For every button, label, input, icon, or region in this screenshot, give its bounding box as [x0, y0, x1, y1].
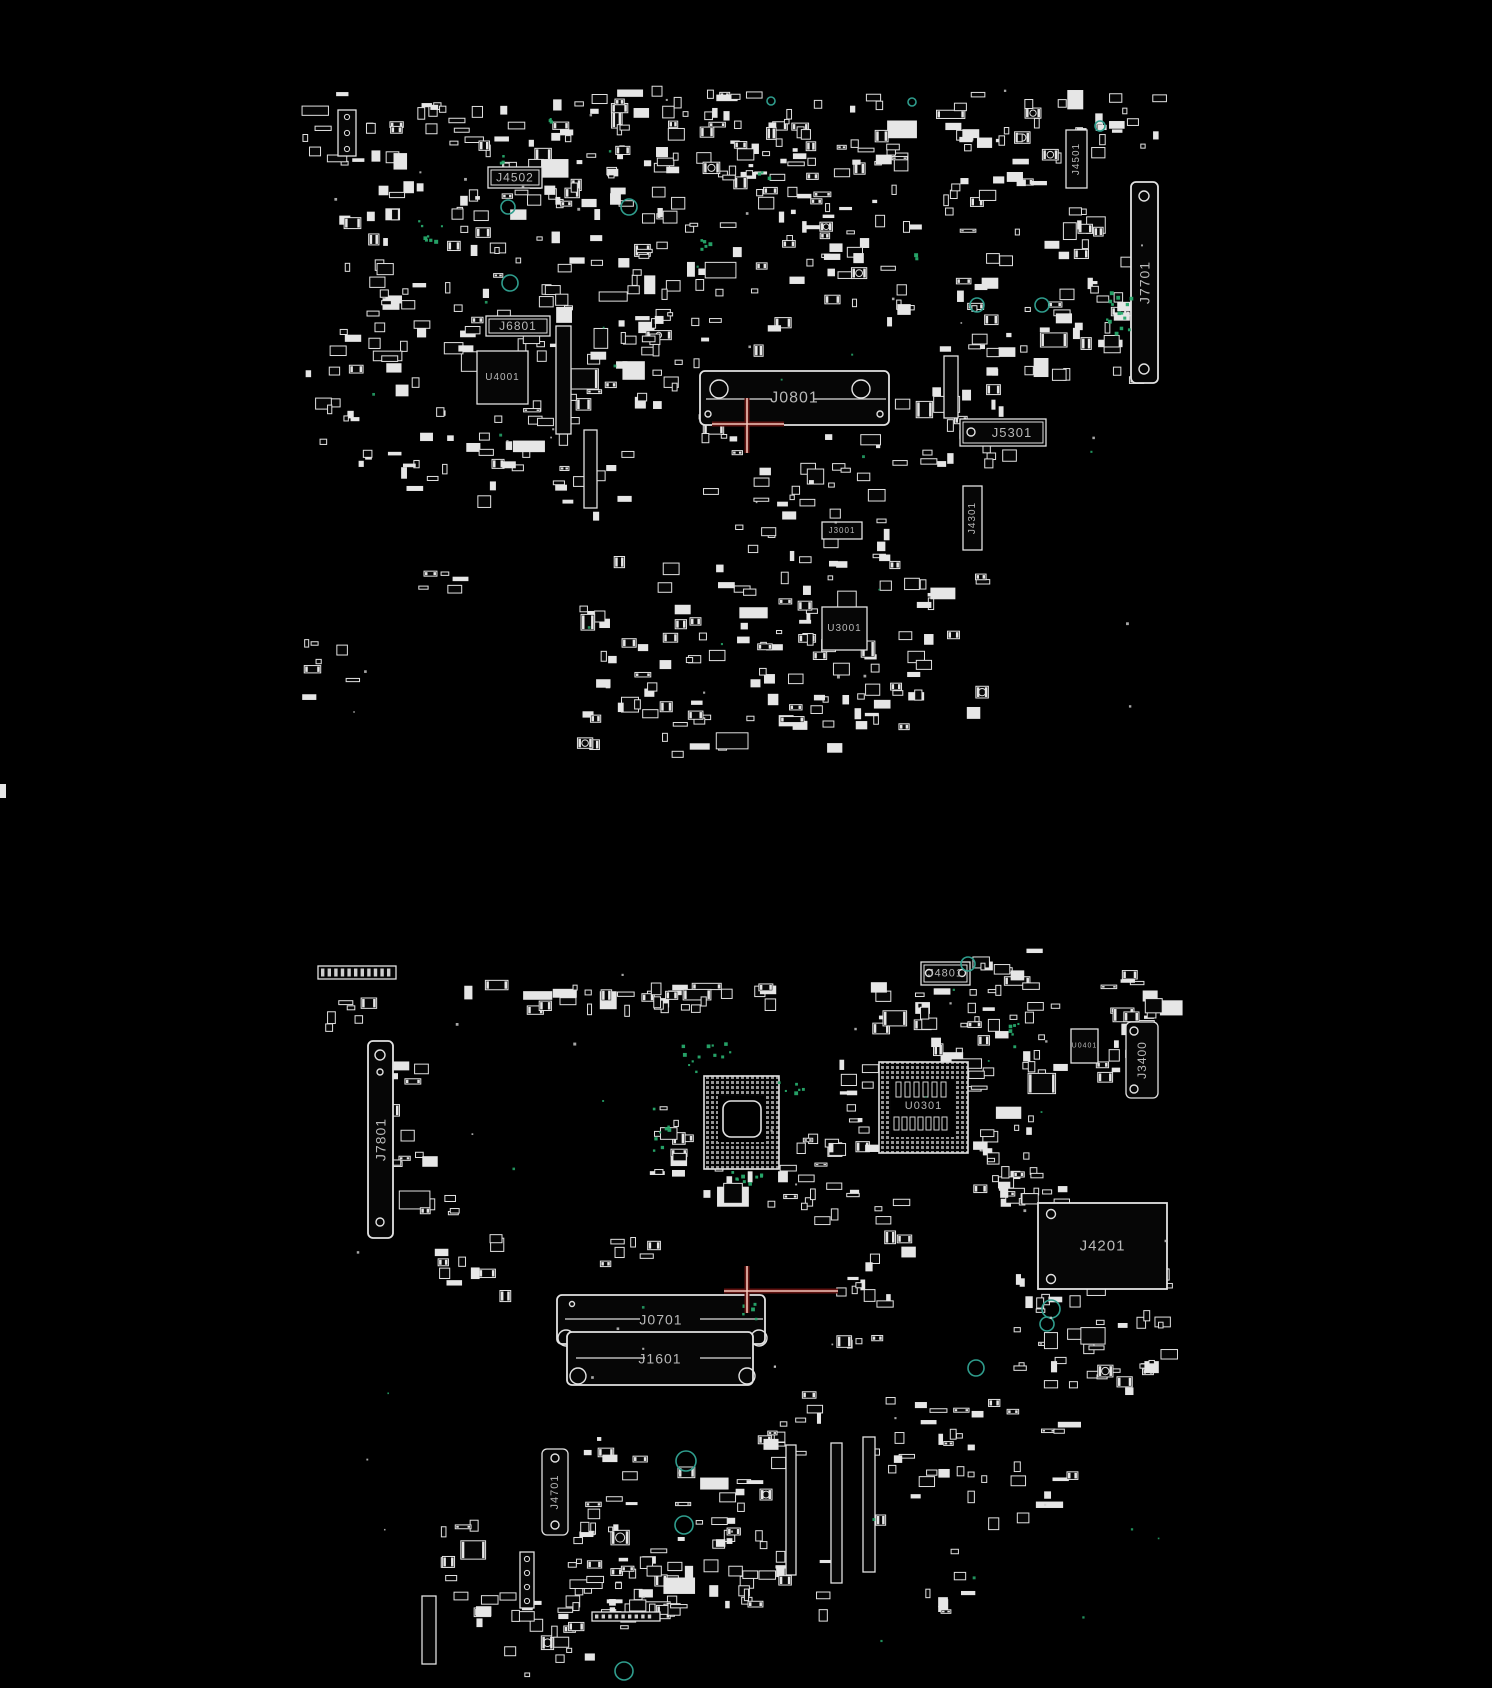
smd-part	[1059, 252, 1069, 259]
smd-part	[954, 1408, 969, 1412]
via-dot-green	[653, 1149, 655, 1151]
smd-part	[626, 1502, 638, 1505]
smd-part	[554, 1637, 569, 1647]
smd-part	[872, 200, 877, 203]
smd-part	[330, 346, 346, 356]
smd-part	[345, 335, 361, 342]
smd-part	[502, 194, 512, 198]
component-J4502[interactable]: J4502	[488, 167, 542, 188]
smd-part	[651, 1549, 667, 1553]
smd-part	[779, 212, 784, 223]
smd-part	[638, 644, 648, 651]
smd-part	[744, 589, 756, 595]
smd-part	[814, 695, 825, 701]
component-U0401[interactable]: U0401	[1071, 1029, 1098, 1063]
via-dot-green	[499, 434, 502, 437]
via-dot	[949, 1002, 951, 1004]
smd-part	[472, 317, 483, 323]
smd-part	[723, 175, 735, 180]
smd-part	[993, 1176, 999, 1182]
smd-part	[780, 159, 786, 164]
smd-part	[793, 153, 806, 159]
smd-part	[1074, 249, 1088, 258]
via-dot	[643, 1596, 645, 1598]
smd-part	[622, 361, 644, 380]
smd-part	[780, 717, 804, 723]
smd-part	[716, 733, 748, 749]
smd-part	[623, 1472, 638, 1480]
smd-part	[663, 106, 674, 118]
smd-part	[476, 1618, 482, 1627]
smd-part	[668, 313, 673, 316]
smd-part	[1026, 1127, 1032, 1135]
smd-part	[653, 370, 661, 375]
smd-part	[973, 1141, 988, 1149]
smd-part	[702, 434, 709, 443]
smd-part	[1041, 1429, 1055, 1432]
smd-part	[461, 1541, 486, 1559]
smd-part	[749, 164, 754, 167]
smd-part	[690, 223, 698, 226]
smd-part	[316, 659, 321, 663]
smd-part	[512, 1610, 520, 1621]
smd-part	[876, 215, 885, 226]
smd-part	[1097, 296, 1109, 302]
via-dot-green	[421, 225, 423, 227]
component-U0301[interactable]: U0301	[879, 1062, 968, 1153]
smd-part	[413, 283, 427, 287]
via-dot	[1141, 244, 1143, 246]
via-dot	[679, 1472, 682, 1475]
smd-part	[1122, 971, 1137, 979]
via-dot	[590, 114, 592, 116]
smd-part	[1000, 1187, 1008, 1198]
smd-part	[704, 1560, 718, 1572]
smd-part	[815, 1163, 827, 1166]
connector-strip[interactable]	[338, 110, 356, 156]
smd-part	[856, 1283, 862, 1288]
component-J4801[interactable]: J4801	[921, 962, 970, 985]
smd-part	[351, 417, 360, 421]
via-dot-green	[434, 240, 438, 244]
smd-part	[1053, 1064, 1068, 1071]
smd-part	[892, 185, 896, 194]
smd-part	[585, 990, 591, 995]
smd-part	[865, 713, 879, 716]
via-dot	[1050, 1317, 1052, 1319]
via-dot-green	[1082, 1616, 1084, 1618]
smd-part	[765, 999, 775, 1011]
smd-part	[311, 642, 318, 645]
smd-part	[483, 289, 489, 298]
smd-part	[712, 1518, 727, 1525]
connector-strip[interactable]	[786, 1445, 796, 1575]
smd-part	[788, 187, 797, 196]
smd-part	[839, 1060, 844, 1070]
smd-part	[1017, 134, 1022, 142]
smd-part	[635, 316, 649, 320]
smd-part	[941, 1610, 951, 1614]
connector-strip[interactable]	[944, 356, 958, 418]
smd-part	[656, 147, 668, 157]
smd-part	[1096, 1320, 1104, 1324]
smd-part	[535, 148, 552, 160]
smd-part	[449, 118, 465, 122]
smd-part	[609, 175, 614, 178]
smd-part	[472, 106, 482, 117]
via-dot-green	[1130, 297, 1134, 301]
smd-part	[516, 258, 521, 263]
via-dot-green	[703, 240, 706, 243]
smd-part	[945, 123, 961, 130]
smd-part	[983, 1068, 994, 1076]
smd-part	[946, 208, 954, 215]
smd-part	[1124, 1012, 1139, 1022]
smd-part	[779, 1576, 792, 1585]
component-J7801[interactable]: J7801	[368, 1041, 393, 1238]
smd-part	[537, 237, 542, 240]
component-bga-large[interactable]	[704, 1076, 779, 1169]
component-J7701[interactable]: J7701	[1131, 182, 1158, 383]
smd-part	[1052, 1477, 1068, 1481]
smd-part	[369, 234, 379, 245]
smd-part	[440, 1268, 450, 1278]
connector-strip[interactable]	[520, 1552, 534, 1608]
smd-part	[960, 178, 968, 184]
smd-part	[989, 1518, 999, 1530]
smd-part	[768, 1431, 777, 1435]
smd-part	[591, 260, 602, 265]
smd-part	[874, 715, 879, 724]
smd-part	[987, 254, 1000, 264]
via-dot-green	[1115, 332, 1119, 336]
via-dot-green	[761, 171, 763, 173]
smd-part	[479, 141, 489, 150]
smd-part	[733, 247, 742, 257]
smd-part	[852, 160, 860, 165]
smd-part	[601, 651, 606, 661]
smd-part	[1040, 327, 1050, 332]
connector-strip[interactable]	[863, 1437, 875, 1572]
smd-part	[1025, 100, 1033, 109]
smd-part	[744, 1589, 748, 1601]
smd-part	[648, 1241, 661, 1249]
via-dot-green	[642, 1306, 645, 1309]
smd-part	[789, 277, 804, 284]
via-dot-green	[880, 1640, 882, 1642]
via-dot-green	[1158, 1538, 1160, 1540]
smd-part	[524, 409, 541, 412]
smd-part	[1007, 172, 1023, 182]
smd-part	[1149, 1360, 1154, 1363]
smd-part	[1114, 1040, 1119, 1048]
smd-part	[876, 1515, 886, 1525]
smd-part	[907, 672, 920, 677]
smd-part	[829, 243, 842, 252]
smd-part	[617, 992, 634, 996]
smd-part	[1075, 323, 1083, 330]
smd-part	[337, 645, 348, 655]
smd-part	[569, 1622, 584, 1630]
smd-part	[621, 332, 625, 343]
via-dot-green	[418, 220, 420, 222]
smd-part	[396, 385, 409, 397]
via-dot	[357, 1251, 359, 1253]
via-dot	[617, 1327, 620, 1330]
smd-part	[860, 238, 869, 248]
smd-part	[1118, 1323, 1128, 1328]
smd-part	[424, 571, 437, 576]
smd-part	[732, 451, 742, 455]
smd-part	[1023, 983, 1040, 989]
smd-part	[619, 1558, 628, 1562]
connector-strip[interactable]	[831, 1443, 842, 1583]
smd-part	[430, 1199, 435, 1210]
smd-part	[1160, 1000, 1183, 1015]
smd-part	[1082, 240, 1088, 249]
smd-part	[588, 1509, 600, 1519]
via-dot-green	[721, 643, 723, 645]
smd-part	[915, 993, 924, 997]
via-dot	[731, 1530, 733, 1532]
smd-part	[1051, 1361, 1057, 1372]
smd-part	[344, 416, 348, 421]
smd-part	[692, 318, 699, 325]
connector-strip[interactable]	[318, 966, 396, 979]
component-label: U0401	[1072, 1043, 1098, 1050]
via-dot-green	[688, 1064, 690, 1066]
smd-part	[614, 556, 624, 567]
smd-part	[653, 401, 662, 409]
smd-part	[642, 214, 654, 223]
component-J3400[interactable]: J3400	[1126, 1022, 1158, 1098]
smd-part	[506, 441, 512, 450]
smd-part	[736, 525, 743, 529]
connector-strip[interactable]	[556, 326, 571, 434]
smd-part	[448, 585, 462, 593]
via-dot-green	[743, 1180, 746, 1183]
component-J6801[interactable]: J6801	[486, 316, 550, 336]
smd-part	[1039, 1035, 1045, 1040]
component-label: J7801	[373, 1118, 389, 1161]
component-J3001[interactable]: J3001	[822, 522, 862, 539]
smd-part	[778, 1171, 788, 1182]
via-dot	[748, 346, 751, 349]
smd-part	[720, 1493, 736, 1502]
smd-part	[1058, 100, 1066, 108]
component-J0801[interactable]: J0801	[700, 371, 889, 425]
via-dot	[1004, 90, 1006, 92]
smd-part	[479, 1269, 496, 1277]
via-dot-green	[1111, 303, 1114, 306]
smd-part	[541, 159, 568, 178]
smd-part	[921, 1420, 937, 1424]
smd-part	[957, 291, 964, 302]
smd-part	[683, 112, 688, 117]
via-dot	[854, 1028, 856, 1030]
smd-part	[1067, 1472, 1078, 1480]
smd-part	[905, 578, 920, 589]
smd-part	[960, 229, 976, 232]
smd-part	[419, 586, 428, 589]
smd-part	[1125, 1387, 1133, 1395]
smd-part	[759, 197, 774, 209]
smd-part	[500, 1291, 511, 1302]
smd-part	[611, 1239, 624, 1244]
component-J4501[interactable]: J4501	[1066, 130, 1087, 188]
smd-part	[635, 700, 641, 709]
component-label: J7701	[1137, 261, 1153, 304]
smd-part	[426, 124, 437, 134]
smd-part	[388, 452, 402, 456]
smd-part	[596, 679, 610, 687]
smd-part	[1104, 335, 1119, 346]
smd-part	[976, 580, 990, 584]
via-dot	[795, 1183, 797, 1185]
component-U4001[interactable]: U4001	[477, 351, 528, 404]
via-dot	[419, 171, 421, 173]
smd-part	[797, 194, 811, 199]
smd-part	[639, 1589, 653, 1597]
smd-part	[893, 1199, 909, 1205]
smd-part	[879, 555, 890, 562]
connector-strip[interactable]	[422, 1596, 436, 1664]
smd-part	[783, 241, 796, 248]
smd-part	[875, 1207, 882, 1211]
smd-part	[315, 126, 331, 130]
smd-part	[1081, 338, 1091, 350]
smd-part	[916, 660, 931, 669]
fiducial-ring	[968, 1360, 984, 1376]
via-dot-green	[614, 365, 617, 368]
smd-part	[705, 112, 713, 120]
smd-part	[420, 1208, 430, 1214]
smd-part	[803, 1138, 812, 1142]
smd-part	[435, 1249, 449, 1256]
smd-part	[763, 1439, 778, 1450]
smd-part	[464, 986, 472, 1000]
smd-part	[558, 1608, 573, 1612]
smd-part	[329, 367, 339, 375]
smd-part	[799, 620, 811, 624]
smd-part	[864, 1290, 875, 1302]
fiducial-ring	[1040, 1317, 1054, 1331]
smd-part	[688, 711, 703, 719]
smd-part	[582, 199, 597, 207]
smd-part	[1040, 333, 1067, 347]
component-J5301[interactable]: J5301	[960, 419, 1046, 446]
smd-part	[919, 1477, 934, 1487]
smd-part	[618, 703, 624, 712]
smd-part	[959, 137, 972, 142]
via-dot-green	[795, 1083, 798, 1086]
smd-part	[697, 153, 711, 164]
smd-part	[1112, 129, 1122, 132]
component-label: J5301	[992, 425, 1032, 440]
component-J4701[interactable]: J4701	[542, 1449, 568, 1535]
smd-part	[305, 640, 309, 647]
smd-part	[827, 743, 842, 753]
smd-part	[944, 1442, 953, 1446]
component-J4201[interactable]: J4201	[1038, 1203, 1167, 1289]
smd-part	[694, 359, 699, 368]
smd-part	[355, 1016, 362, 1024]
smd-part	[1025, 366, 1033, 374]
smd-part	[1054, 1429, 1064, 1433]
smd-part	[782, 511, 796, 519]
fiducial-ring	[615, 1662, 633, 1680]
smd-part	[600, 1261, 610, 1267]
via-dot-green	[1108, 320, 1112, 324]
smd-part	[1043, 1190, 1052, 1194]
smd-part	[981, 1130, 994, 1137]
smd-part	[686, 657, 692, 662]
smd-part	[1007, 1409, 1019, 1414]
smd-part	[969, 1071, 985, 1078]
smd-part	[795, 1451, 806, 1455]
via-dot-green	[1126, 303, 1129, 306]
via-dot-green	[754, 1303, 757, 1306]
smd-part	[865, 1145, 880, 1152]
smd-part	[304, 666, 320, 673]
connector-strip[interactable]	[584, 430, 597, 508]
component-label: J4801	[928, 968, 963, 980]
smd-part	[1024, 1153, 1029, 1159]
smd-part	[861, 435, 881, 445]
smd-part	[508, 122, 524, 129]
smd-part	[917, 602, 932, 608]
smd-part	[887, 144, 900, 150]
smd-part	[1092, 148, 1105, 158]
smd-part	[808, 158, 816, 165]
via-dot-green	[925, 1096, 927, 1098]
smd-part	[675, 605, 691, 615]
via-dot-green	[698, 1056, 701, 1059]
smd-part	[1144, 1311, 1150, 1321]
smd-part	[999, 136, 1005, 145]
via-dot	[552, 428, 554, 430]
component-U3001[interactable]: U3001	[822, 607, 867, 650]
smd-part	[590, 109, 599, 114]
via-dot	[746, 212, 749, 215]
smd-part	[622, 451, 634, 457]
smd-part	[609, 1599, 616, 1606]
smd-part	[915, 690, 922, 700]
smd-part	[911, 1494, 921, 1498]
via-dot	[384, 1529, 386, 1531]
smd-part	[977, 138, 992, 148]
smd-part	[760, 1542, 767, 1549]
component-J4301[interactable]: J4301	[963, 486, 982, 550]
smd-part	[921, 1007, 929, 1019]
smd-part	[1070, 1296, 1080, 1307]
smd-part	[391, 126, 403, 133]
via-dot-green	[441, 225, 443, 227]
smd-part	[674, 97, 681, 108]
smd-part	[1094, 227, 1104, 236]
smd-part	[453, 577, 469, 581]
smd-part	[876, 991, 891, 1001]
smd-part	[660, 660, 672, 669]
smd-part	[798, 601, 812, 610]
via-dot-green	[1011, 1033, 1013, 1035]
via-dot	[573, 1043, 576, 1046]
via-dot	[960, 322, 962, 324]
smd-part	[895, 1433, 904, 1444]
component-J1601[interactable]: J1601	[567, 1332, 755, 1385]
connector-strip[interactable]	[592, 1612, 660, 1621]
via-dot	[1165, 1240, 1167, 1242]
